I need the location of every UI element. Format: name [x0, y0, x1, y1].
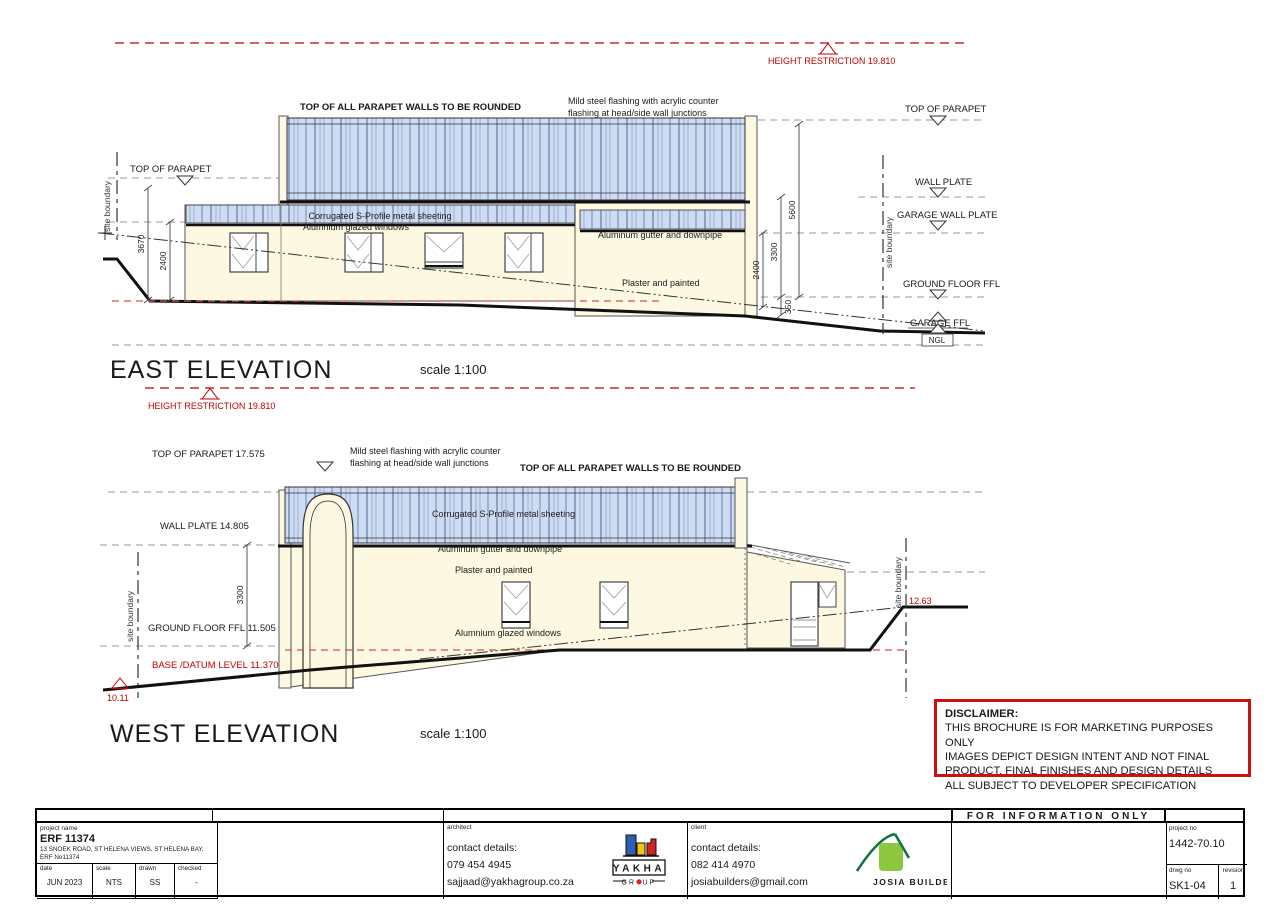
east-left-dims [144, 185, 174, 303]
east-top-of-parapet-left-label: TOP OF PARAPET [130, 164, 211, 175]
east-site-boundary-right: site boundary [883, 155, 894, 334]
client-label: client [691, 824, 706, 831]
josia-builders-logo: JOSIA BUILDERS [839, 829, 947, 893]
west-site-boundary-right-label: site boundary [893, 556, 903, 608]
west-level-top-of-parapet: TOP OF PARAPET 17.575 [152, 449, 265, 460]
east-window-3 [425, 233, 463, 268]
east-dim-2400-left: 2400 [158, 251, 168, 270]
architect-cell: architect contact details: 079 454 4945 … [443, 823, 687, 899]
east-dim-3300: 3300 [769, 242, 779, 261]
drawing-number-cell: project no 1442-70.10 drwg no SK1-04 rev… [1166, 823, 1247, 899]
east-level-ground-floor-ffl: GROUND FLOOR FFL [903, 279, 1000, 290]
project-erf: ERF No11374 [40, 854, 214, 862]
west-level-base-datum: BASE /DATUM LEVEL 11.370 [152, 660, 279, 671]
east-window-2 [345, 233, 383, 272]
west-scale: scale 1:100 [420, 726, 487, 741]
disclaimer-line: IMAGES DEPICT DESIGN INTENT AND NOT FINA… [945, 750, 1240, 764]
architect-phone: 079 454 4945 [447, 857, 574, 874]
title-block-top-strip: FOR INFORMATION ONLY [37, 810, 1243, 823]
west-right-parapet-cap [735, 478, 747, 548]
architect-email: sajjaad@yakhagroup.co.za [447, 874, 574, 891]
revision-value: 1 [1219, 874, 1247, 892]
project-name: ERF 11374 [40, 833, 214, 845]
for-information-only: FOR INFORMATION ONLY [951, 810, 1166, 823]
yakha-logo-sub-right: UP [643, 880, 657, 887]
east-scale: scale 1:100 [420, 362, 487, 377]
disclaimer-line: ALL SUBJECT TO DEVELOPER SPECIFICATION [945, 779, 1240, 793]
east-upper-sheeting-band [287, 118, 745, 200]
drwg-no-value: SK1-04 [1166, 874, 1218, 892]
project-block: project name ERF 11374 13 SNOEK ROAD, ST… [37, 823, 218, 899]
west-sheeting-label: Corrugated S-Profile metal sheeting [432, 509, 575, 519]
east-right-parapet-cap [745, 116, 757, 316]
east-parapet-note: TOP OF ALL PARAPET WALLS TO BE ROUNDED [300, 102, 521, 113]
east-flashing-note-1: Mild steel flashing with acrylic counter [568, 96, 719, 106]
project-no-label: project no [1166, 823, 1247, 832]
east-level-ngl: NGL [929, 336, 946, 345]
client-contact: contact details: [691, 840, 808, 857]
east-windows-label: Alumnium glazed windows [303, 222, 410, 232]
disclaimer-heading: DISCLAIMER: [945, 707, 1240, 721]
west-site-boundary-left: site boundary [125, 552, 138, 698]
east-dim-5600: 5600 [787, 200, 797, 219]
west-gutter-label: Aluminum gutter and downpipe [438, 544, 562, 554]
height-restriction-line-bottom: HEIGHT RESTRICTION 19.810 [145, 388, 915, 411]
east-right-levels: TOP OF PARAPET WALL PLATE GARAGE WALL PL… [897, 104, 1000, 346]
east-garage-sheeting-band [580, 210, 745, 229]
west-parapet-note: TOP OF ALL PARAPET WALLS TO BE ROUNDED [520, 463, 741, 474]
height-restriction-label-top: HEIGHT RESTRICTION 19.810 [768, 56, 895, 66]
disclaimer-line: PRODUCT. FINAL FINISHES AND DESIGN DETAI… [945, 764, 1240, 778]
architect-contact: contact details: [447, 840, 574, 857]
east-site-boundary-left-label: site boundary [102, 180, 112, 232]
east-window-1 [230, 233, 268, 272]
divider [443, 810, 444, 821]
height-restriction-label-bottom: HEIGHT RESTRICTION 19.810 [148, 401, 275, 411]
drawn-value: SS [136, 878, 174, 887]
east-flashing-note-2: flashing at head/side wall junctions [568, 108, 707, 118]
west-window-2 [600, 582, 628, 628]
west-spot-level-left: 10.11 [107, 693, 129, 703]
josia-logo-text: JOSIA BUILDERS [873, 877, 947, 887]
client-cell: client contact details: 082 414 4970 jos… [687, 823, 951, 899]
drawing-sheet: HEIGHT RESTRICTION 19.810 site boundary … [0, 0, 1280, 904]
east-level-garage-wall-plate: GARAGE WALL PLATE [897, 210, 997, 221]
east-level-top-of-parapet: TOP OF PARAPET [905, 104, 986, 115]
scale-value: NTS [93, 878, 135, 887]
west-flashing-note-2: flashing at head/side wall junctions [350, 458, 489, 468]
west-spot-level-right: 12.63 [909, 596, 932, 606]
west-title: WEST ELEVATION [110, 720, 339, 748]
west-window-1 [502, 582, 530, 628]
east-window-4 [505, 233, 543, 272]
project-no-value: 1442-70.10 [1166, 832, 1247, 850]
west-plaster-label: Plaster and painted [455, 565, 533, 575]
disclaimer-box: DISCLAIMER: THIS BROCHURE IS FOR MARKETI… [934, 699, 1251, 777]
revision-label: revision [1219, 865, 1247, 874]
drawn-label: drawn [139, 865, 156, 872]
west-garage-window [819, 582, 836, 607]
west-dim-3300: 3300 [235, 585, 245, 604]
east-plaster-label: Plaster and painted [622, 278, 700, 288]
date-label: date [40, 865, 52, 872]
east-building: Corrugated S-Profile metal sheeting Alum… [185, 116, 757, 316]
east-gutter-label: Aluminum gutter and downpipe [598, 230, 722, 240]
client-email: josiabuilders@gmail.com [691, 874, 808, 891]
yakha-logo-sub-left: GR [622, 880, 637, 887]
project-name-label: project name [40, 825, 214, 832]
project-address: 13 SNOEK ROAD, ST HELENA VIEWS, ST HELEN… [40, 846, 214, 854]
divider [951, 823, 952, 899]
east-dim-3670: 3670 [136, 234, 146, 253]
architect-label: architect [447, 824, 472, 831]
height-restriction-line-top: HEIGHT RESTRICTION 19.810 [115, 43, 965, 66]
east-level-wall-plate: WALL PLATE [915, 177, 972, 188]
east-title: EAST ELEVATION [110, 356, 332, 384]
yakha-group-logo: YAKHA GR UP [595, 831, 683, 893]
east-site-boundary-left: site boundary [98, 152, 117, 240]
divider [212, 810, 213, 821]
east-sheeting-label: Corrugated S-Profile metal sheeting [308, 211, 451, 221]
project-meta-grid: date JUN 2023 scale NTS drawn SS checked… [37, 863, 218, 899]
west-windows-label: Alumnium glazed windows [455, 628, 562, 638]
east-top-of-parapet-left: TOP OF PARAPET [130, 164, 211, 185]
checked-value: - [175, 878, 218, 887]
east-elevation-drawing: HEIGHT RESTRICTION 19.810 site boundary … [0, 0, 1280, 430]
west-garage-door [791, 582, 818, 646]
east-site-boundary-right-label: site boundary [884, 216, 894, 268]
client-phone: 082 414 4970 [691, 857, 808, 874]
east-dim-2400-right: 2400 [751, 260, 761, 279]
west-flashing-note-1: Mild steel flashing with acrylic counter [350, 446, 501, 456]
yakha-logo-text: YAKHA [613, 864, 665, 875]
drwg-no-label: drwg no [1166, 865, 1218, 874]
date-value: JUN 2023 [37, 878, 92, 887]
west-building: Corrugated S-Profile metal sheeting Alum… [278, 478, 850, 688]
scale-label: scale [96, 865, 111, 872]
west-site-boundary-left-label: site boundary [125, 590, 135, 642]
checked-label: checked [178, 865, 201, 872]
west-level-ground-floor-ffl: GROUND FLOOR FFL 11.505 [148, 623, 276, 634]
title-block: FOR INFORMATION ONLY project name ERF 11… [35, 808, 1245, 897]
west-level-wall-plate: WALL PLATE 14.805 [160, 521, 249, 532]
disclaimer-line: THIS BROCHURE IS FOR MARKETING PURPOSES … [945, 721, 1240, 750]
east-dim-350: 350 [783, 300, 793, 314]
